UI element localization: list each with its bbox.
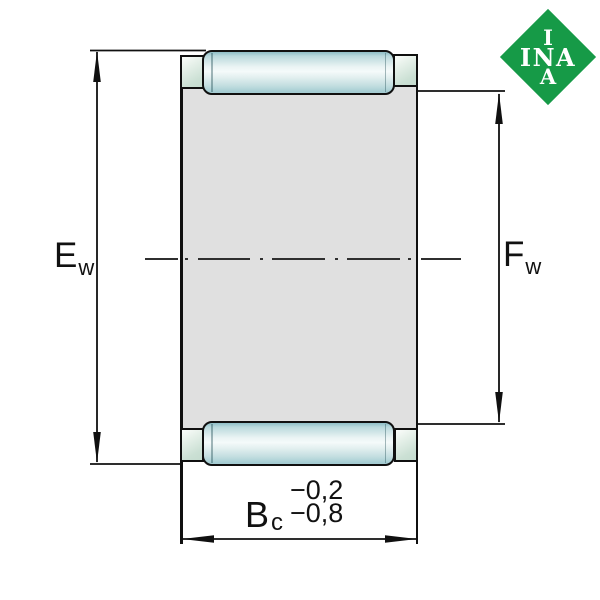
arrow-up-icon xyxy=(495,93,503,124)
cage-body xyxy=(181,56,416,462)
roller-end-line xyxy=(211,424,213,463)
roller-end-line xyxy=(385,53,387,92)
arrow-left-icon xyxy=(182,535,214,543)
arrow-up-icon xyxy=(93,51,101,82)
cage-left-edge xyxy=(180,55,183,544)
bc-label-base: B xyxy=(245,497,269,533)
cage-bar-top-right xyxy=(393,54,418,87)
ew-label-sub: w xyxy=(78,255,94,280)
fw-label: Fw xyxy=(503,236,541,278)
ina-logo: I INA A xyxy=(500,9,596,105)
ew-label-base: E xyxy=(54,236,77,275)
arrow-right-icon xyxy=(385,535,417,543)
needle-roller-top xyxy=(202,50,395,95)
arrow-down-icon xyxy=(495,392,503,423)
cage-right-edge xyxy=(416,54,419,544)
needle-roller-bottom xyxy=(202,421,395,466)
fw-label-sub: w xyxy=(525,254,541,279)
roller-end-line xyxy=(211,53,213,92)
ina-logo-line3: A xyxy=(540,68,556,86)
bc-label-sub: c xyxy=(271,511,283,535)
roller-end-line xyxy=(385,424,387,463)
ew-label: Ew xyxy=(54,237,94,279)
ina-logo-text: I INA A xyxy=(514,23,582,91)
bc-tolerance-lower: −0,8 xyxy=(290,502,343,525)
fw-dimension xyxy=(417,91,505,424)
arrow-down-icon xyxy=(93,432,101,463)
bc-dimension xyxy=(182,535,417,543)
bc-label: B c −0,2 −0,8 xyxy=(245,478,343,535)
cage-bar-bottom-left xyxy=(180,428,204,462)
fw-label-base: F xyxy=(503,235,524,274)
cage-bar-bottom-right xyxy=(394,428,418,462)
bearing-technical-drawing: Ew Fw B c −0,2 −0,8 I INA A xyxy=(0,0,600,600)
bc-tolerance-stack: −0,2 −0,8 xyxy=(290,479,343,524)
